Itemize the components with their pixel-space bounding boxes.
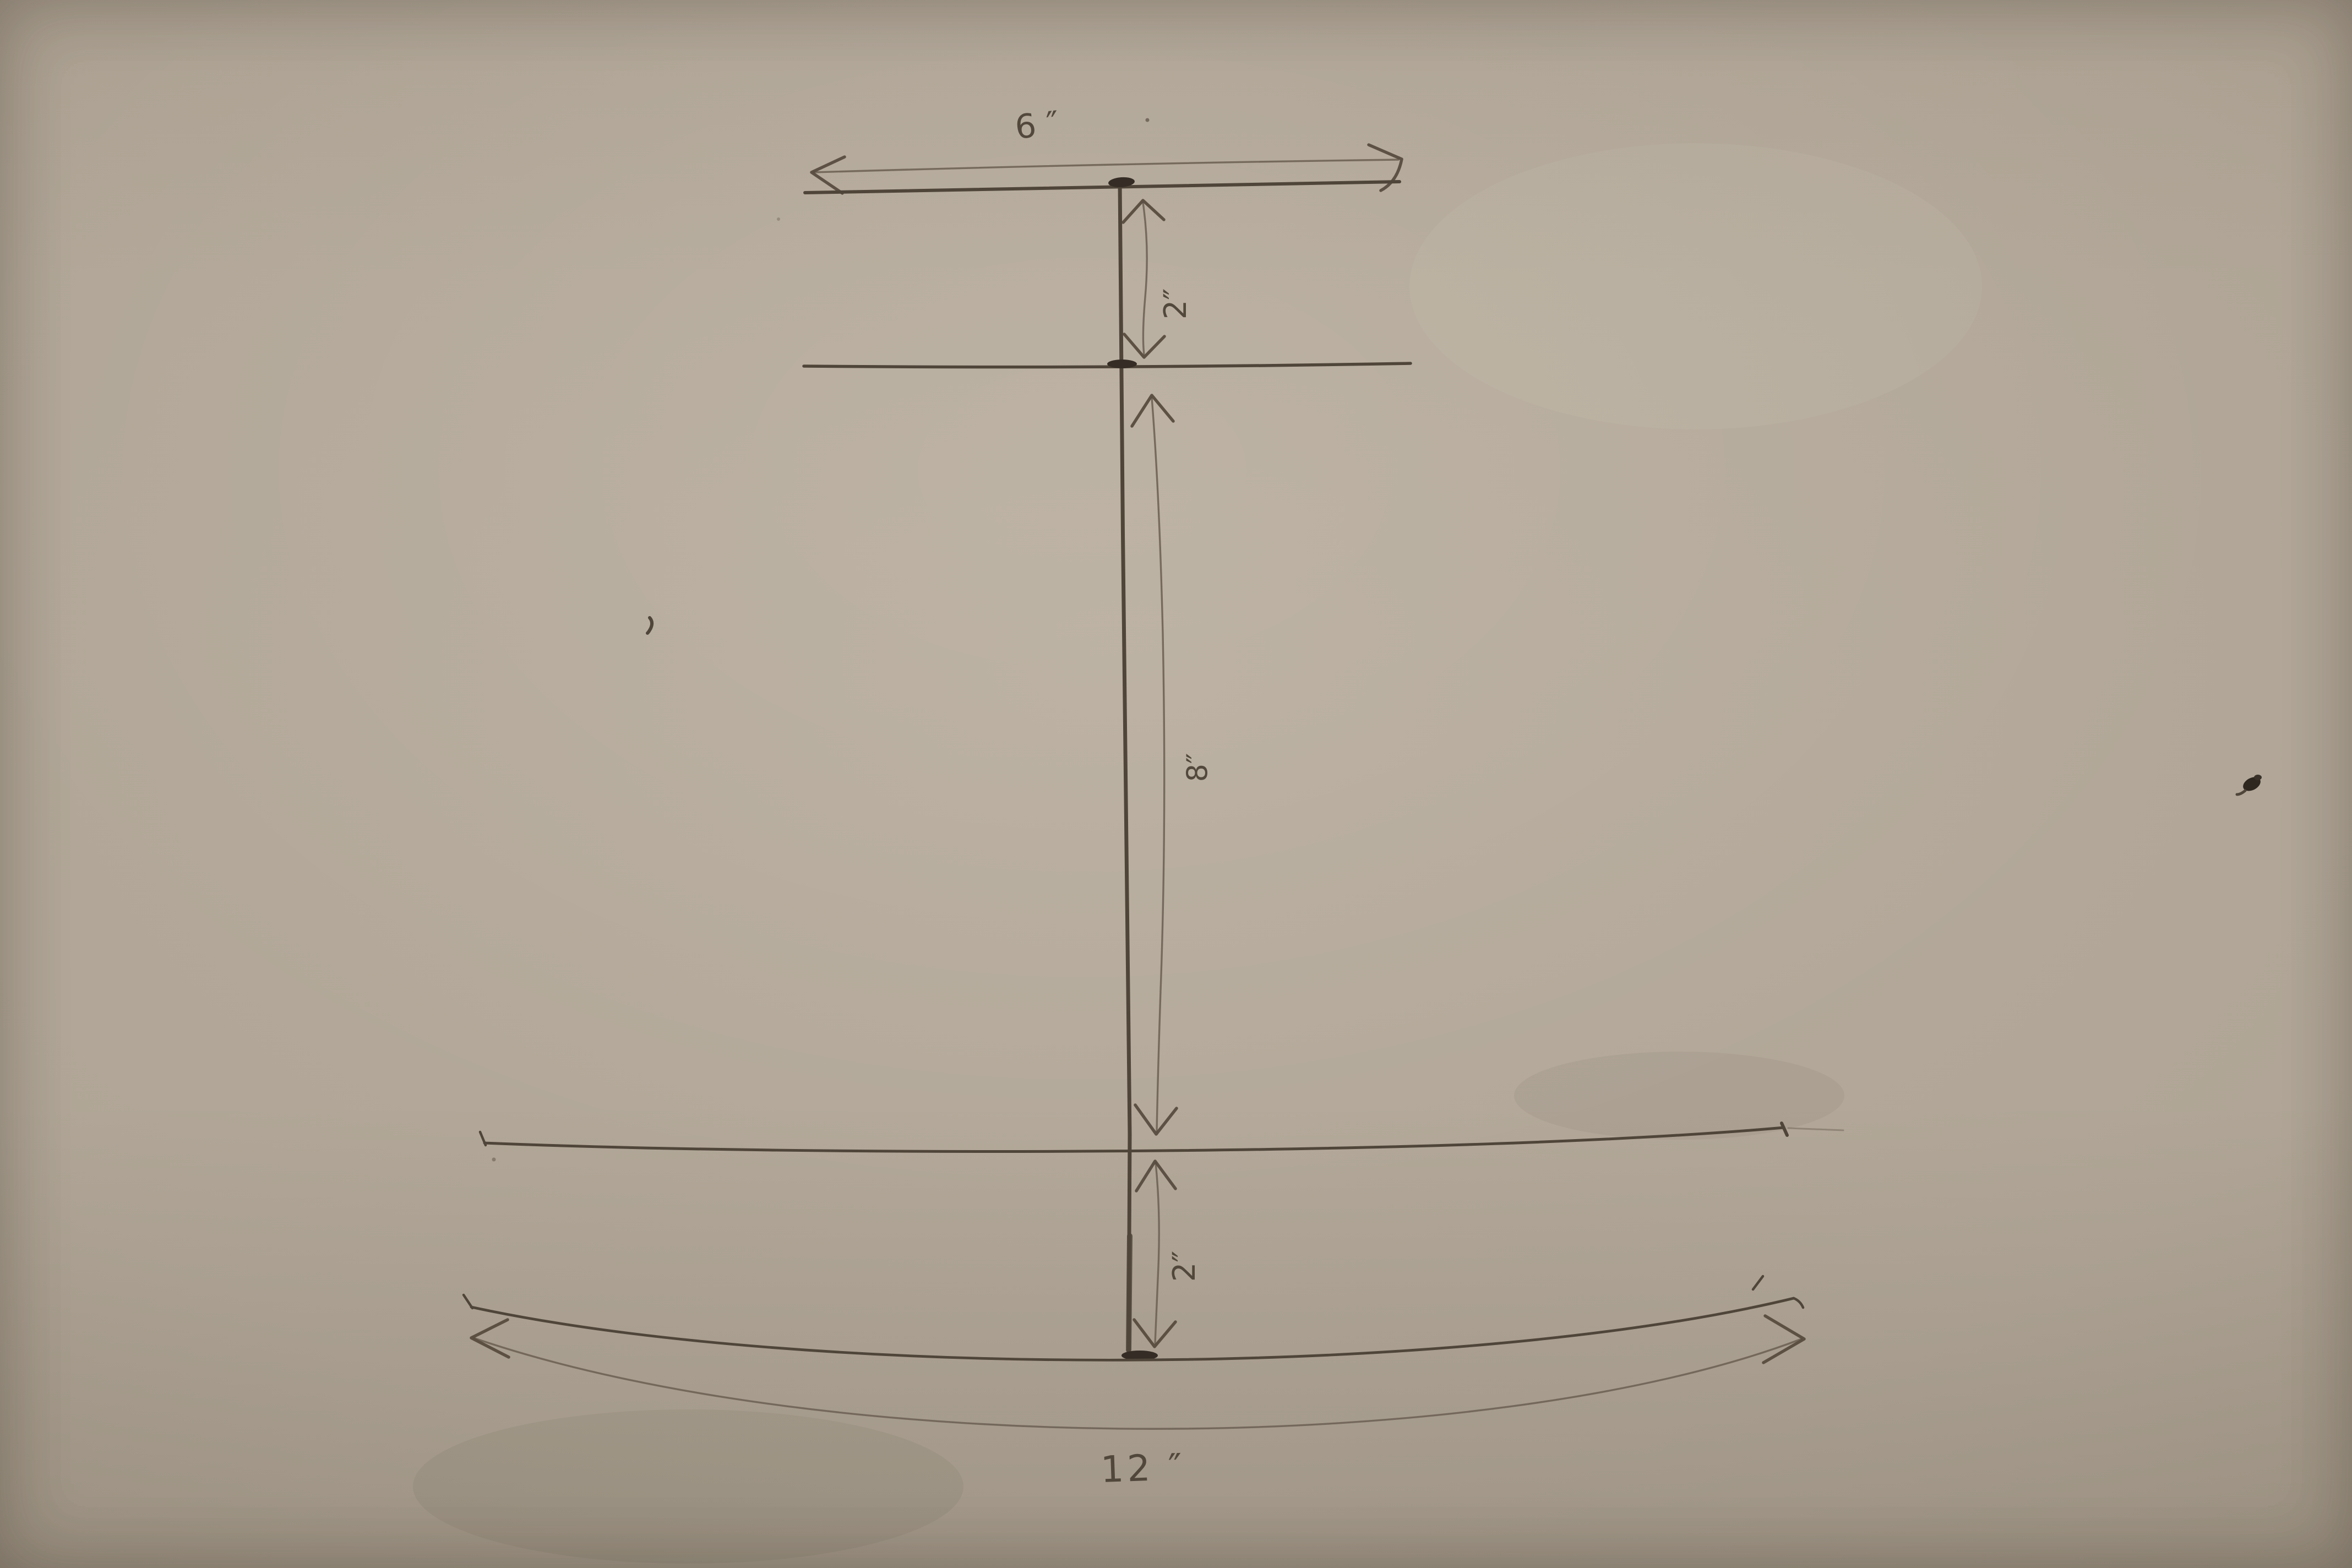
dimension-label-bottom-flange-thickness: 2″ bbox=[1167, 1251, 1202, 1282]
dim-line-6in bbox=[814, 160, 1398, 172]
dimension-label-top-width: 6 ″ bbox=[1013, 104, 1061, 147]
web-line bbox=[1107, 176, 1158, 1360]
dimension-label-top-flange-thickness: 2″ bbox=[1158, 288, 1194, 320]
dim-8in: 8″ bbox=[1132, 395, 1215, 1134]
top-flange-top-line bbox=[805, 182, 1400, 193]
arrowhead-left-6in bbox=[812, 157, 845, 193]
speck-dot-bottom-left bbox=[492, 1158, 496, 1162]
dimension-label-web-height: 8″ bbox=[1182, 753, 1215, 782]
bottom-flange-bottom-line-right-hook bbox=[1794, 1298, 1803, 1308]
bottom-flange-stray-tick bbox=[1753, 1276, 1763, 1289]
bottom-flange bbox=[464, 1123, 1843, 1360]
paper-blemishes bbox=[413, 143, 1982, 1564]
speck-dot-left bbox=[777, 217, 780, 221]
speck-comma-mid-left bbox=[647, 618, 652, 633]
paper-smudge bbox=[1514, 1052, 1844, 1140]
dimension-label-bottom-width: 12 ″ bbox=[1100, 1446, 1186, 1491]
dim-line-2in-top bbox=[1143, 203, 1147, 355]
dim-2in-top: 2″ bbox=[1123, 200, 1194, 357]
bottom-flange-bottom-line bbox=[471, 1298, 1794, 1360]
speck-blob-head bbox=[2254, 775, 2262, 780]
dim-line-2in-bottom bbox=[1155, 1163, 1159, 1343]
paper-specks bbox=[492, 118, 2263, 1162]
dim-line-8in bbox=[1152, 398, 1164, 1132]
paper-bright-patch bbox=[1409, 143, 1982, 429]
bottom-flange-top-line-faint-extension bbox=[1788, 1128, 1843, 1130]
bottom-flange-top-line-left-tick bbox=[480, 1132, 486, 1145]
top-flange bbox=[804, 182, 1411, 367]
speck-blob-tail bbox=[2237, 791, 2245, 794]
web-thick-lower-segment bbox=[1129, 1236, 1130, 1350]
dim-6in: 6 ″ bbox=[812, 104, 1402, 193]
web-vertical-line bbox=[1120, 183, 1130, 1352]
web-mid-junction-blob bbox=[1107, 360, 1137, 368]
paper-shadow-bottom-left bbox=[413, 1409, 963, 1564]
dim-2in-bottom: 2″ bbox=[1134, 1161, 1202, 1347]
speck-blob-right bbox=[2237, 774, 2263, 794]
bottom-flange-bottom-line-left-tick bbox=[464, 1295, 472, 1308]
beam-cross-section-sketch: 6 ″ 2″ 8″ bbox=[0, 0, 2352, 1568]
speck-dot-top bbox=[1146, 118, 1150, 122]
